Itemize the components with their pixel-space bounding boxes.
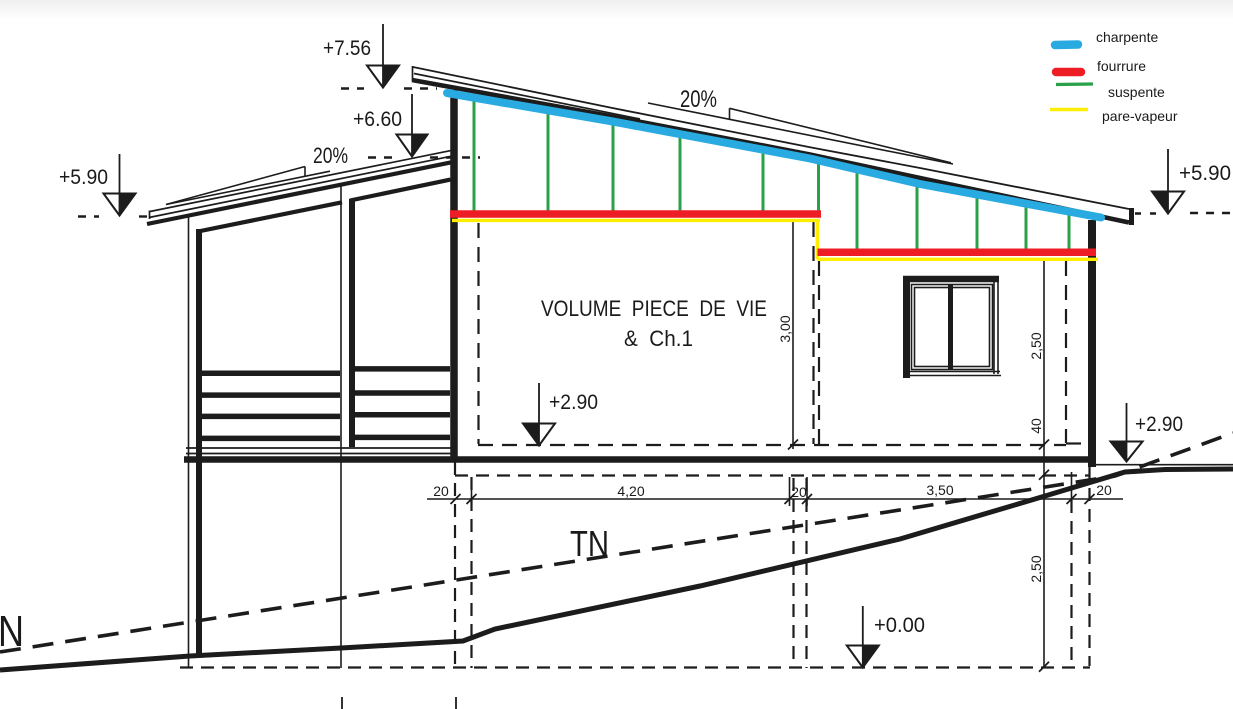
svg-text:+6.60: +6.60 (353, 108, 402, 131)
svg-text:4,20: 4,20 (617, 483, 644, 499)
svg-text:suspente: suspente (1108, 84, 1165, 100)
svg-text:+2.90: +2.90 (549, 391, 598, 414)
svg-text:& Ch.1: & Ch.1 (624, 326, 693, 351)
svg-text:20%: 20% (313, 143, 348, 168)
svg-text:charpente: charpente (1096, 29, 1158, 45)
svg-text:+5.90: +5.90 (59, 166, 108, 189)
svg-text:pare-vapeur: pare-vapeur (1102, 108, 1178, 124)
svg-text:fourrure: fourrure (1097, 58, 1146, 74)
svg-text:+0.00: +0.00 (874, 614, 925, 637)
svg-text:40: 40 (1028, 418, 1044, 434)
svg-text:+5.90: +5.90 (1179, 162, 1231, 185)
svg-text:TN: TN (570, 523, 609, 564)
svg-text:2,50: 2,50 (1028, 555, 1044, 582)
svg-text:20: 20 (1096, 482, 1112, 498)
svg-text:+2.90: +2.90 (1135, 413, 1183, 436)
svg-text:+7.56: +7.56 (323, 37, 371, 60)
svg-text:TN: TN (0, 607, 24, 656)
svg-text:20: 20 (433, 483, 449, 499)
svg-text:VOLUME PIECE DE VIE: VOLUME PIECE DE VIE (541, 296, 767, 321)
svg-text:20%: 20% (680, 86, 717, 113)
svg-text:3,00: 3,00 (777, 315, 793, 342)
svg-text:3,50: 3,50 (926, 482, 953, 498)
svg-text:2,50: 2,50 (1028, 332, 1044, 359)
svg-text:20: 20 (791, 484, 807, 500)
